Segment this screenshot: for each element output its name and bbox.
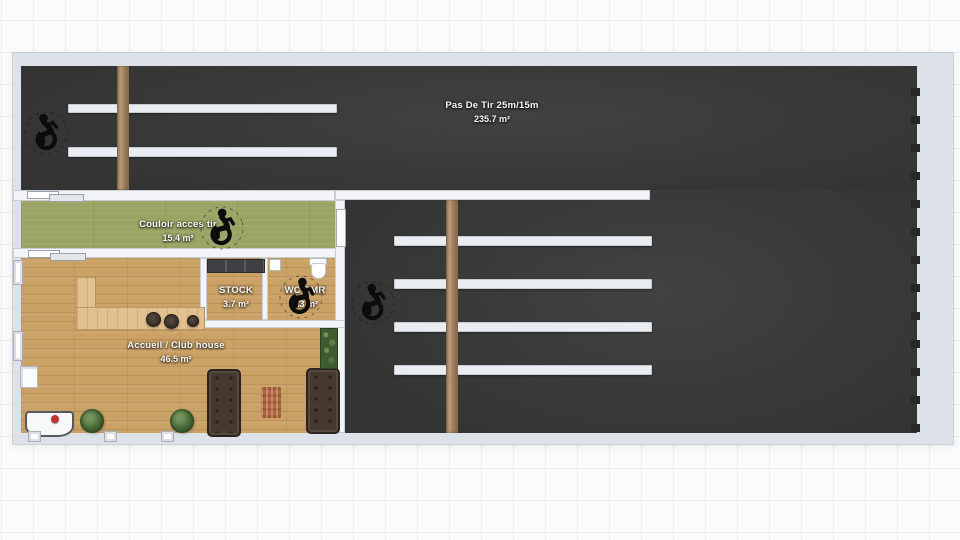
support-post[interactable] [446, 200, 458, 433]
desk-accessory[interactable] [51, 415, 59, 423]
shooting-table[interactable] [68, 147, 337, 157]
wall-stock-bottom[interactable] [200, 320, 345, 328]
wall-range-divider[interactable] [335, 190, 650, 200]
wheelchair-icon[interactable] [273, 269, 329, 325]
shooting-table[interactable] [394, 365, 652, 375]
rug[interactable] [261, 387, 281, 418]
shooting-table[interactable] [394, 236, 652, 246]
shooting-table[interactable] [394, 279, 652, 289]
room-shooting-range-upper[interactable] [21, 66, 917, 190]
room-shooting-range-lower[interactable] [345, 190, 917, 433]
sliding-door-range-leaf[interactable] [49, 194, 84, 202]
plant[interactable] [80, 409, 104, 433]
support-post[interactable] [117, 66, 129, 190]
bar-counter-horizontal[interactable] [76, 307, 205, 330]
plant[interactable] [170, 409, 194, 433]
shooting-table[interactable] [68, 104, 337, 113]
storage-shelf[interactable] [207, 259, 265, 273]
window-bottom[interactable] [161, 431, 174, 442]
window-bottom[interactable] [104, 431, 117, 442]
sofa[interactable] [306, 368, 340, 434]
window-bottom[interactable] [28, 431, 41, 442]
room-corridor[interactable] [21, 201, 335, 248]
bar-stool[interactable] [164, 314, 179, 329]
shooting-table[interactable] [394, 322, 652, 332]
planter[interactable] [320, 328, 338, 369]
door-range-access[interactable] [336, 209, 346, 247]
sofa[interactable] [207, 369, 241, 437]
window-left[interactable] [13, 260, 23, 285]
window-left[interactable] [13, 331, 23, 361]
floor-plan-canvas: Pas De Tir 25m/15m 235.7 m² Couloir acce… [0, 0, 960, 540]
bullet-trap-ribs [911, 88, 920, 432]
sliding-door-corridor-leaf[interactable] [50, 253, 86, 261]
sink[interactable] [269, 259, 281, 271]
bar-stool[interactable] [146, 312, 161, 327]
wall-panel[interactable] [20, 366, 38, 388]
bar-stool[interactable] [187, 315, 199, 327]
